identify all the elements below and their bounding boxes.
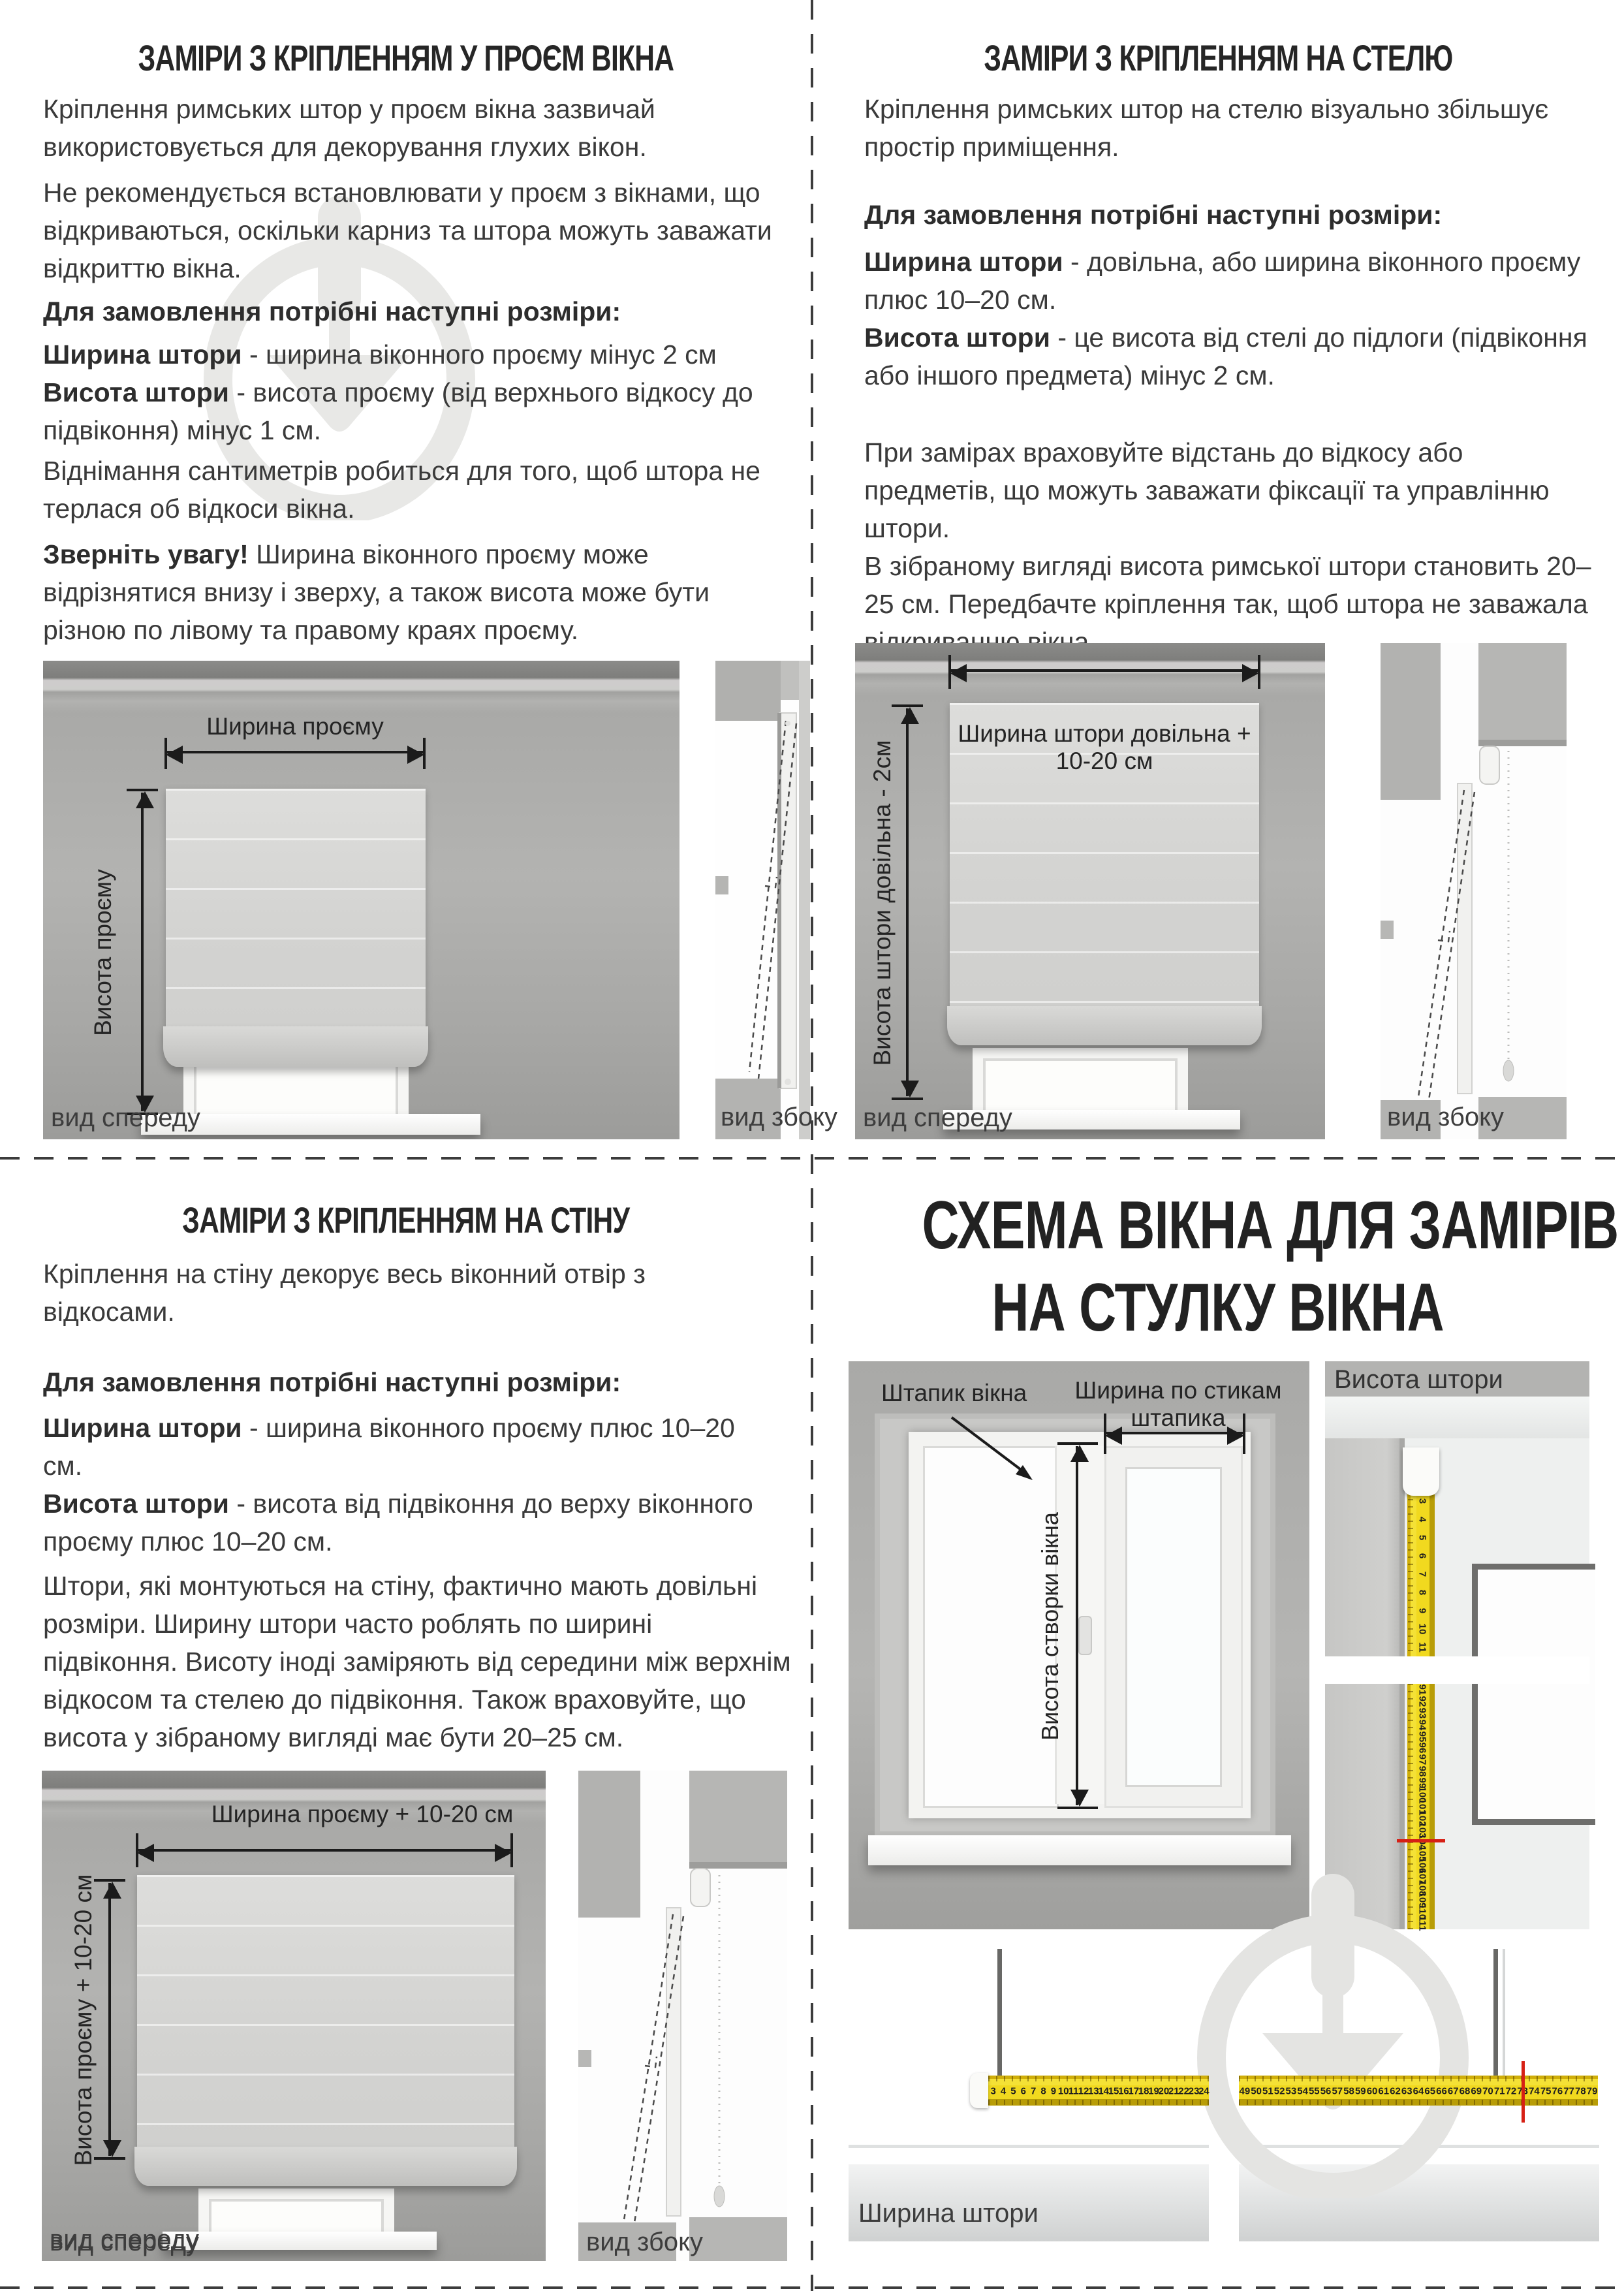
ceiling: [1325, 1397, 1589, 1438]
side-view-diagram-wall: [578, 1771, 787, 2261]
roman-blind-fold: [163, 1026, 428, 1067]
dim-width-label: Ширина проєму: [132, 713, 458, 740]
dimension-tick: [94, 2157, 125, 2160]
sash-window-schema: Штапик вікна Ширина по стикам штапика Ви…: [849, 1361, 1309, 1929]
dimension-tick: [892, 1098, 923, 1100]
window-handle: [1078, 1616, 1092, 1655]
image-caption-bar: Висота штори: [1325, 1361, 1589, 1397]
red-mark-104: [1397, 1839, 1445, 1842]
side-view-diagram-opening: [715, 661, 810, 1139]
cornice: [43, 661, 679, 713]
roman-blind: [166, 789, 426, 1032]
size-definitions: Ширина штори - довільна, або ширина віко…: [864, 243, 1593, 394]
paragraph: Не рекомендується встановлювати у проєм …: [43, 174, 778, 287]
measuring-tape-vertical-top: 34567891011: [1407, 1492, 1435, 1656]
height-arrow: [108, 1883, 111, 2156]
blind-cassette: [1480, 746, 1499, 784]
height-arrow: [141, 793, 144, 1111]
dim-height-label: Висота проєму + 10-20 см: [70, 1874, 97, 2166]
order-heading: Для замовлення потрібні наступні розміри…: [43, 292, 778, 330]
height-arrow: [906, 708, 909, 1096]
blind-cassette: [691, 1869, 710, 1906]
section-title-opening: ЗАМІРИ З КРІПЛЕННЯМ У ПРОЄМ ВІКНА: [0, 37, 812, 79]
vertical-cut-line: [811, 0, 813, 2291]
side-view-label: вид збоку: [1387, 1103, 1504, 1132]
front-view-label: вид спереду: [51, 1103, 200, 1133]
bottom-cut-line: [0, 2286, 1624, 2289]
bead-pointer-arrow: [946, 1412, 1044, 1491]
width-arrow: [167, 751, 423, 753]
roman-blind-fold: [947, 1006, 1262, 1045]
red-mark-73: [1522, 2061, 1525, 2123]
width-arrow: [138, 1849, 510, 1852]
dim-width-label: Ширина проєму + 10-20 см: [199, 1801, 525, 1828]
order-heading: Для замовлення потрібні наступні розміри…: [864, 196, 1593, 234]
bead-width-label-line1: Ширина по стикам: [1070, 1377, 1286, 1404]
dim-width-label: Ширина штори довільна + 10-20 см: [941, 720, 1268, 775]
windowsill: [868, 1835, 1291, 1865]
size-definitions: Ширина штори - ширина віконного проєму м…: [43, 336, 778, 449]
measuring-tape-vertical-bottom: 9192939495969798991001011021031041051061…: [1407, 1684, 1435, 1929]
side-view-diagram-ceiling: [1381, 643, 1567, 1139]
paragraph: Штори, які монтуються на стіну, фактично…: [43, 1567, 794, 1756]
width-arrow: [951, 669, 1258, 672]
curtain-height-label: Висота штори: [1334, 1365, 1503, 1395]
tape-end-hook: [970, 2073, 988, 2108]
paragraph: При замірах враховуйте відстань до відко…: [864, 434, 1593, 661]
photo-cut-band: [1325, 1656, 1589, 1684]
roman-blind: [137, 1875, 514, 2149]
dim-height-label: Висота штори довільна - 2см: [869, 740, 896, 1066]
front-view-label: вид спереду: [50, 2228, 199, 2257]
tape-end-hook: [1403, 1447, 1439, 1496]
schema-title-line2: НА СТУЛКУ ВІКНА: [812, 1269, 1624, 1347]
front-view-diagram-ceiling: Ширина штори довільна + 10-20 см Висота …: [855, 643, 1325, 1139]
note-paragraph: Зверніть увагу! Ширина віконного проєму …: [43, 535, 778, 649]
measuring-tape-horizontal-right: 4950515253545556575859606162636465666768…: [1239, 2076, 1598, 2106]
front-view-label: вид спереду: [863, 1103, 1012, 1133]
curtain-height-image: 34567891011 9192939495969798991001011021…: [1325, 1361, 1589, 1929]
paragraph: Віднімання сантиметрів робиться для того…: [43, 452, 778, 528]
measuring-tape-horizontal-left: 3456789101112131415161718192021222324: [988, 2076, 1209, 2106]
glass-frame-corner: [1472, 1564, 1595, 1825]
sash-height-arrow: [1076, 1446, 1078, 1805]
measuring-instructions-flyer: ЗАМІРИ З КРІПЛЕННЯМ У ПРОЄМ ВІКНА Кріпле…: [0, 0, 1624, 2291]
side-view-label: вид збоку: [586, 2228, 703, 2257]
right-sash-glass: [1125, 1467, 1222, 1787]
section-title-wall: ЗАМІРИ З КРІПЛЕННЯМ НА СТІНУ: [0, 1199, 812, 1241]
size-definitions: Ширина штори - ширина віконного проєму п…: [43, 1409, 778, 1560]
bead-width-arrow: [1106, 1432, 1243, 1434]
bead-width-label-line2: штапика: [1070, 1404, 1286, 1432]
bead-label: Штапик вікна: [881, 1380, 1084, 1407]
dim-height-label: Висота проєму: [89, 869, 117, 1036]
section-title-ceiling: ЗАМІРИ З КРІПЛЕННЯМ НА СТЕЛЮ: [812, 37, 1624, 79]
sash-height-label: Висота створки вікна: [1037, 1512, 1064, 1741]
windowsill: [163, 2232, 437, 2250]
paragraph: Кріплення римських штор у проєм вікна за…: [43, 90, 778, 166]
front-view-diagram-wall: Ширина проєму + 10-20 см Висота проєму +…: [42, 1771, 546, 2261]
curtain-width-label: Ширина штори: [858, 2199, 1038, 2228]
dimension-tick: [1057, 1807, 1098, 1809]
schema-title-line1: СХЕМА ВІКНА ДЛЯ ЗАМІРІВ: [812, 1187, 1624, 1265]
order-heading: Для замовлення потрібні наступні розміри…: [43, 1363, 778, 1401]
side-view-label: вид збоку: [721, 1103, 837, 1132]
front-view-diagram-opening: Ширина проєму Висота проєму вид спереду: [43, 661, 679, 1139]
paragraph: Кріплення римських штор на стелю візуаль…: [864, 90, 1593, 166]
paragraph: Кріплення на стіну декорує весь віконний…: [43, 1255, 778, 1331]
roman-blind-fold: [134, 2147, 517, 2186]
